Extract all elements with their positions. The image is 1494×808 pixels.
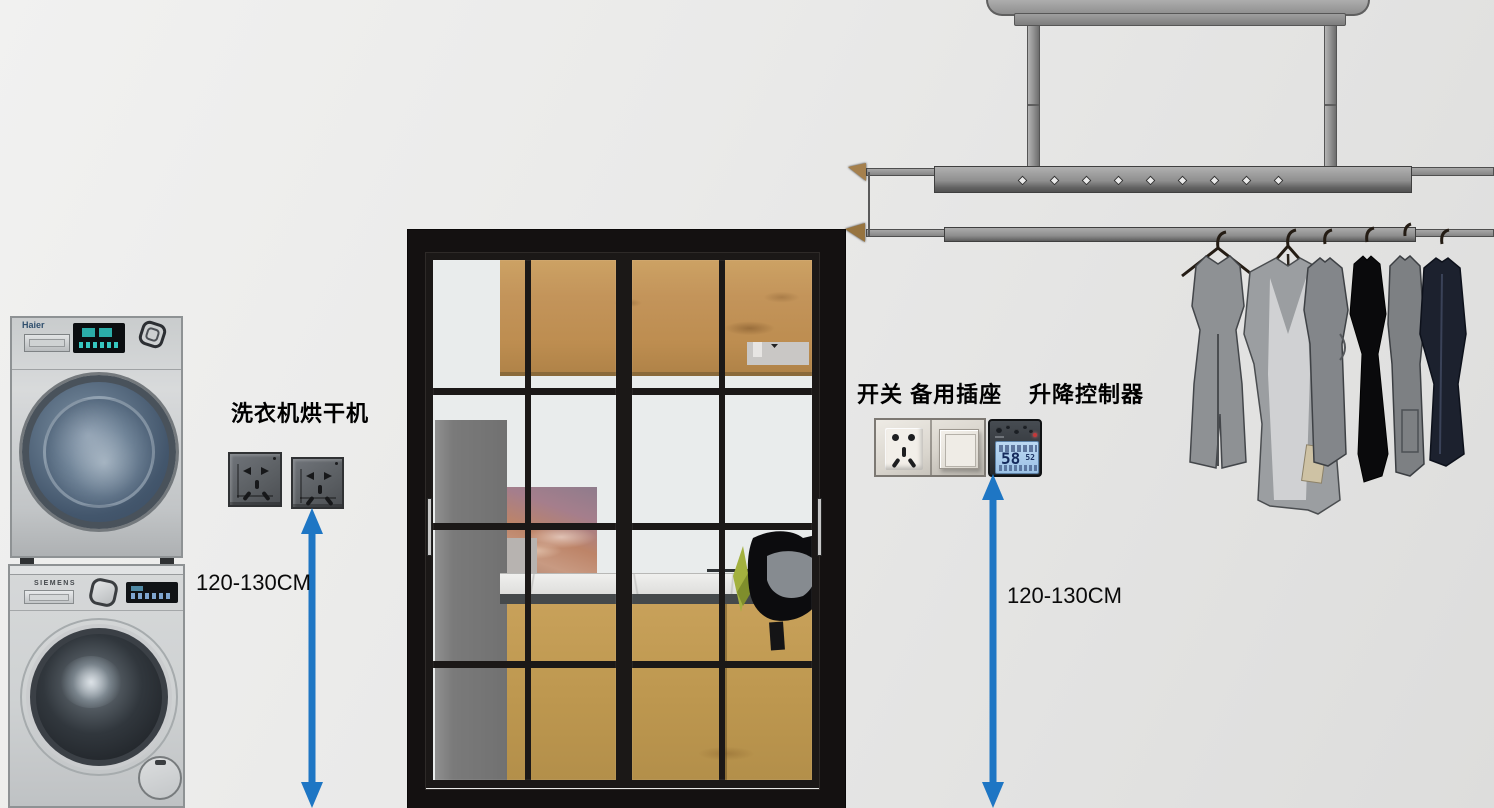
- dryer-program-knob: [87, 576, 119, 608]
- drying-rack-left-pole: [1027, 25, 1040, 170]
- controller-button[interactable]: [996, 427, 1002, 433]
- garment-black-dress: [1350, 256, 1388, 482]
- controller-button[interactable]: [1014, 429, 1019, 434]
- dryer-brand-logo: SIEMENS: [34, 580, 76, 587]
- socket-hole: [255, 480, 259, 489]
- garment-navy-coat: [1420, 258, 1466, 466]
- controller-button[interactable]: [1006, 425, 1010, 429]
- label-washer-dryer: 洗衣机烘干机: [231, 396, 369, 428]
- rack-hole: [1018, 176, 1028, 186]
- dryer-control-panel: SIEMENS: [10, 575, 183, 611]
- measurement-right: 120-130CM: [1007, 583, 1122, 609]
- outlet-dryer: [291, 457, 344, 509]
- controller-button[interactable]: [1029, 429, 1033, 433]
- washer-brand-logo: Haier: [22, 320, 45, 330]
- dryer-display: [126, 582, 178, 603]
- display-segment: [82, 328, 95, 337]
- screw: [335, 462, 338, 465]
- socket-hole: [318, 485, 322, 494]
- socket-hole: [306, 472, 314, 480]
- socket-hole: [907, 458, 916, 468]
- label-switch-spare-socket: 开关 备用插座: [857, 377, 1002, 409]
- socket-hole: [891, 458, 900, 468]
- washer-display: [73, 323, 125, 353]
- socket-hole: [902, 447, 906, 457]
- socket-hole: [908, 434, 915, 441]
- drying-rack-right-pole: [1324, 25, 1337, 170]
- door-handle-left[interactable]: [427, 498, 432, 556]
- lcd-sub-value: 52: [1025, 453, 1035, 462]
- rack-hole: [1082, 176, 1092, 186]
- rocker-switch[interactable]: [939, 429, 979, 469]
- drying-rack-housing-rim: [1014, 13, 1346, 26]
- rack-wall-anchor-top: [848, 163, 866, 181]
- door-handle-right[interactable]: [817, 498, 822, 556]
- outlet-washer: [228, 452, 282, 507]
- lift-controller-panel[interactable]: 58 52: [988, 419, 1042, 477]
- door-outer-frame: [408, 230, 845, 808]
- drying-rack-upper-rod-left: [866, 168, 936, 176]
- socket-hole: [892, 434, 899, 441]
- washer-program-knob: [137, 319, 169, 351]
- rack-end-connector: [868, 172, 870, 236]
- wall-plate-socket-switch: [874, 418, 986, 477]
- socket-hole: [243, 467, 251, 475]
- dryer-door-ring: [20, 618, 178, 776]
- lcd-segment-row: [999, 465, 1037, 471]
- controller-lcd: 58 52: [995, 441, 1039, 474]
- height-arrow-right: [977, 474, 1009, 808]
- socket-hole: [261, 467, 269, 475]
- height-arrow-left: [296, 508, 328, 808]
- dryer-top-plate: [10, 566, 183, 575]
- dryer-door: [30, 628, 168, 766]
- drying-rack-upper-bar: [934, 166, 1412, 193]
- washing-machine-haier: Haier: [10, 316, 183, 558]
- drying-rack-lower-rod-left: [866, 229, 946, 237]
- washer-detergent-drawer: [24, 334, 70, 352]
- controller-logo-mark: [995, 436, 1004, 438]
- rack-hole: [1146, 176, 1156, 186]
- display-segment-row: [79, 342, 119, 348]
- drying-rack-upper-rod-right: [1410, 167, 1494, 176]
- rack-hole: [1274, 176, 1284, 186]
- controller-button[interactable]: [1023, 425, 1027, 429]
- rack-hole: [1178, 176, 1188, 186]
- rack-hole: [1242, 176, 1252, 186]
- washer-control-panel: Haier: [12, 318, 181, 370]
- washer-door: [22, 375, 176, 529]
- rack-hole: [1050, 176, 1060, 186]
- socket-hole: [261, 491, 270, 501]
- dryer-drawer: [24, 590, 74, 604]
- label-lift-controller: 升降控制器: [1029, 377, 1144, 409]
- measurement-left: 120-130CM: [196, 570, 311, 596]
- rack-hole: [1210, 176, 1220, 186]
- controller-red-led: [1033, 433, 1037, 437]
- dryer-siemens: SIEMENS: [8, 564, 185, 808]
- screw: [273, 457, 276, 460]
- socket-hole: [324, 472, 332, 480]
- plate-seam: [930, 420, 932, 475]
- spare-socket: [885, 428, 923, 470]
- rack-wall-anchor-bottom: [845, 223, 865, 242]
- display-segment: [99, 328, 112, 337]
- hanging-clothes: [1158, 214, 1478, 534]
- laundry-room-plan: Haier SIEMENS 洗衣机烘干机: [0, 0, 1494, 808]
- dryer-service-door: [138, 756, 182, 800]
- rack-hole: [1114, 176, 1124, 186]
